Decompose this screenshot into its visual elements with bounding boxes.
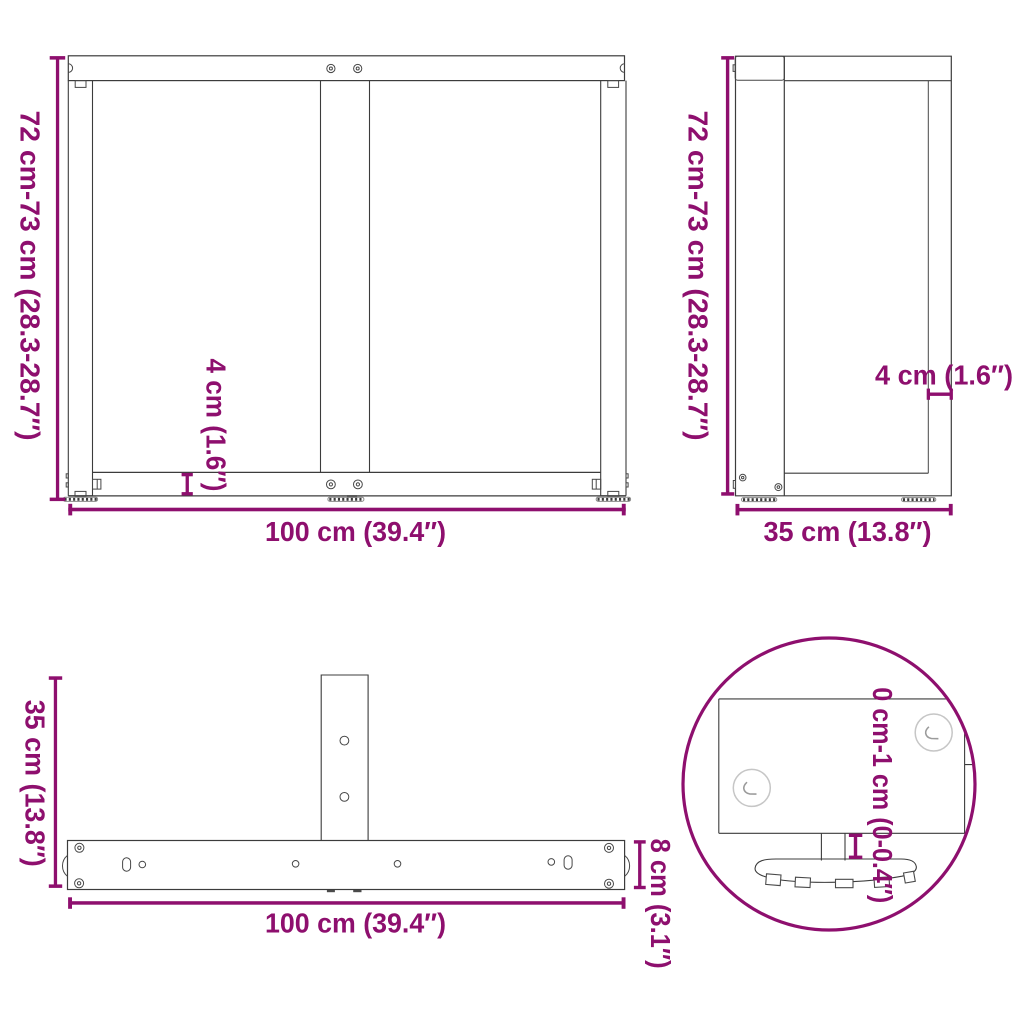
svg-text:100 cm (39.4″): 100 cm (39.4″)	[265, 908, 446, 939]
svg-text:0 cm-1 cm (0-0.4″): 0 cm-1 cm (0-0.4″)	[867, 687, 898, 903]
svg-text:72 cm-73 cm (28.3-28.7″): 72 cm-73 cm (28.3-28.7″)	[683, 111, 714, 441]
svg-text:8 cm (3.1″): 8 cm (3.1″)	[645, 839, 676, 969]
svg-text:35 cm (13.8″): 35 cm (13.8″)	[19, 700, 50, 867]
svg-text:72 cm-73 cm (28.3-28.7″): 72 cm-73 cm (28.3-28.7″)	[15, 111, 46, 441]
svg-text:100 cm (39.4″): 100 cm (39.4″)	[265, 516, 446, 547]
svg-text:4 cm (1.6″): 4 cm (1.6″)	[875, 360, 1013, 391]
svg-text:35 cm (13.8″): 35 cm (13.8″)	[764, 516, 932, 547]
svg-text:4 cm (1.6″): 4 cm (1.6″)	[201, 359, 232, 492]
